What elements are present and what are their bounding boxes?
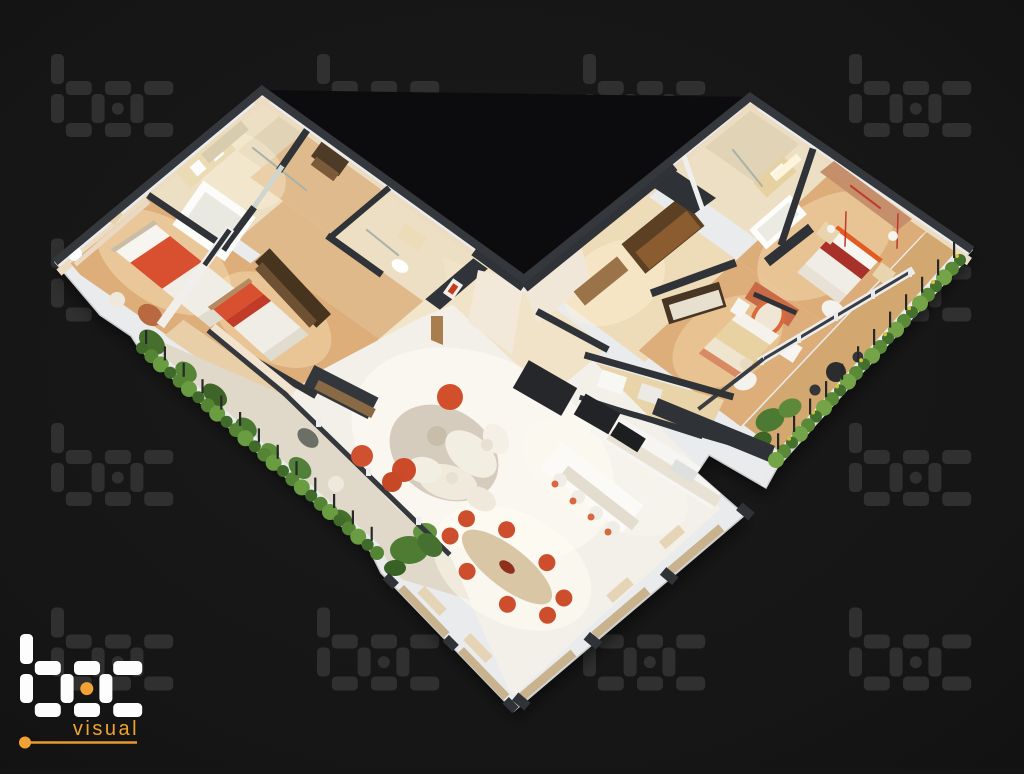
svg-text:visual: visual (73, 718, 139, 740)
